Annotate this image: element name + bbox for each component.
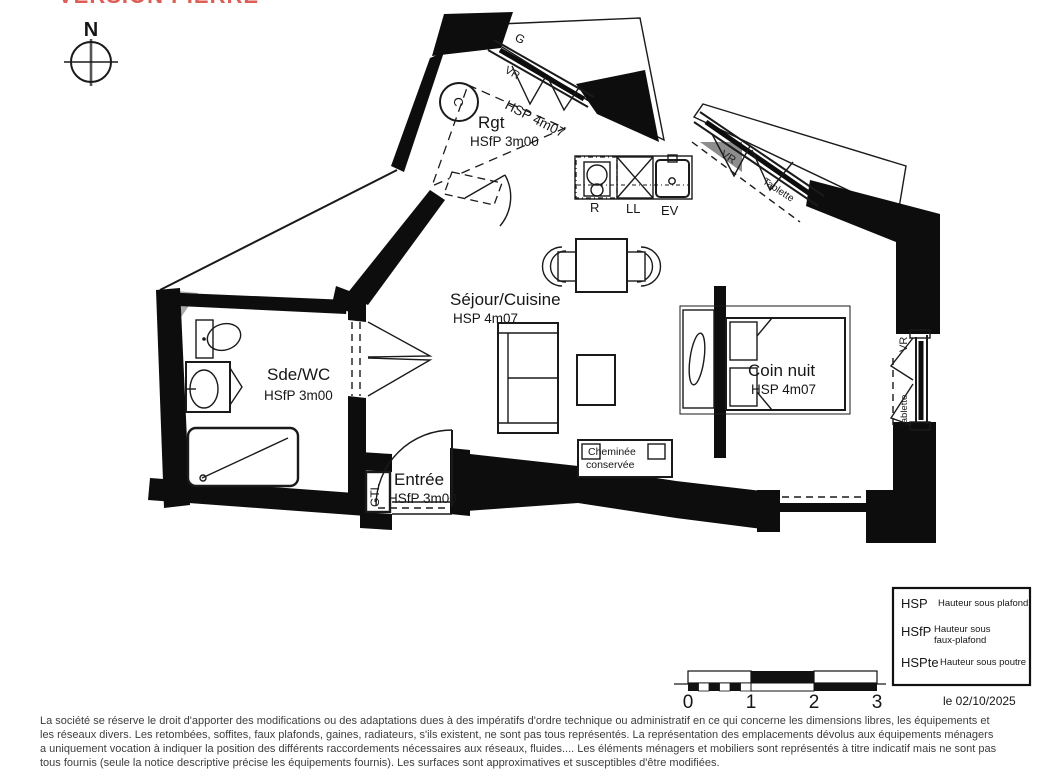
scale-tick-1: 1 [746, 692, 757, 713]
scale-tick-2: 2 [809, 692, 820, 713]
side-table [577, 355, 615, 405]
floor-plan-page: VERSION PIERRE N [0, 0, 1039, 770]
legend-hspte-abbr: HSPte [901, 655, 939, 670]
scale-check-1 [688, 683, 699, 691]
wall-sdewc-north [157, 292, 348, 314]
bed-zone-outline [680, 306, 850, 414]
gtl-label: GTL [368, 483, 382, 507]
scale-seg-top-2 [751, 671, 814, 683]
scale-check-6 [741, 683, 752, 691]
sdewc-name: Sde/WC [267, 365, 330, 384]
exterior-outline [160, 18, 906, 330]
wall-sejour-northwest [346, 190, 445, 305]
fridge-outline [576, 157, 617, 198]
floor-plan-drawing: N [0, 0, 1039, 770]
legend-hsp-abbr: HSP [901, 596, 928, 611]
room-coin-nuit: Coin nuit HSP 4m07 [680, 306, 850, 414]
scale-bar: 0 1 2 3 [674, 671, 886, 713]
fridge-label: R [590, 200, 599, 215]
sofa [498, 323, 558, 433]
facade-line-west [160, 170, 397, 290]
table-top [576, 239, 627, 292]
chimney-box: Cheminée conservée [578, 440, 672, 477]
chimney-label-2: conservée [586, 459, 635, 471]
fridge-circle-small [591, 184, 603, 196]
wall-headboard-partition [714, 286, 726, 458]
rgt-name: Rgt [478, 113, 505, 132]
washer-label: LL [626, 201, 640, 216]
scale-check-3 [709, 683, 720, 691]
wall-sdewc-east-top [348, 298, 366, 322]
rgt-dashed-opening [444, 172, 502, 205]
scale-seg-top-1 [688, 671, 751, 683]
guardrail-label: G [513, 30, 528, 47]
wall-southeast-corner [866, 422, 936, 543]
scale-check-2 [699, 683, 710, 691]
scale-seg-bot-3 [814, 683, 877, 691]
sejour-name: Séjour/Cuisine [450, 290, 561, 309]
bed-pillow-top [730, 322, 757, 360]
tablette-east-label: Tablette [899, 395, 910, 428]
window-north-inner-line [488, 50, 588, 107]
kitchen-counter: R LL EV [575, 155, 692, 218]
room-rgt: C HSP 4m07 Rgt HSfP 3m00 [432, 83, 567, 226]
room-sejour: Séjour/Cuisine HSP 4m07 [450, 290, 561, 326]
scale-check-5 [730, 683, 741, 691]
fridge-circle-large [587, 165, 607, 185]
coin-nuit-ceiling: HSP 4m07 [751, 382, 816, 397]
legend-box: HSP Hauteur sous plafond HSfP Hauteur so… [893, 588, 1030, 685]
sdewc-ceiling: HSfP 3m00 [264, 388, 333, 403]
entree-ceiling: HSfP 3m00 [388, 491, 457, 506]
wall-gtl-bottom [360, 512, 392, 530]
window-northeast: VR Tablette [692, 112, 824, 222]
room-entree: GTL Entrée HSfP 3m00 [366, 430, 457, 514]
scale-tick-0: 0 [683, 692, 694, 713]
scale-check-4 [720, 683, 731, 691]
bed-fold-top [757, 318, 772, 336]
sink-label: EV [661, 203, 679, 218]
north-compass: N [64, 19, 118, 86]
vr-east-label: VR [898, 337, 910, 352]
wall-gtl-top [360, 452, 392, 472]
wall-rgt-west [391, 52, 444, 172]
entree-name: Entrée [394, 470, 444, 489]
scale-seg-top-3 [814, 671, 877, 683]
rgt-door-arc [500, 175, 511, 226]
rgt-ceiling: HSfP 3m00 [470, 134, 539, 149]
legend-hspte-label: Hauteur sous poutre [940, 657, 1026, 668]
room-sde-wc: Sde/WC HSfP 3m00 [186, 319, 430, 486]
legend-hsp-label: Hauteur sous plafond [938, 598, 1028, 609]
window-east: VR Tablette [891, 330, 930, 430]
wall-northeast-corner [806, 180, 940, 334]
sdewc-door-leaf-2 [368, 358, 430, 396]
chimney-label-1: Cheminée [588, 446, 636, 458]
scale-tick-3: 3 [872, 692, 883, 713]
scale-seg-bot-2 [751, 683, 814, 691]
wall-radiator-bar [780, 503, 868, 512]
wall-sdewc-west [156, 288, 190, 508]
window-north: G VR [488, 30, 594, 110]
sdewc-door-leaf-1 [368, 322, 430, 357]
compass-north-label: N [84, 19, 98, 41]
legend-hsfp-abbr: HSfP [901, 624, 931, 639]
wall-pier-between-windows [576, 70, 659, 142]
coin-nuit-name: Coin nuit [748, 361, 815, 380]
legend-hsfp-label: Hauteur sous [934, 624, 991, 635]
washbasin-side-panel [230, 368, 242, 405]
wardrobe-outline [683, 310, 714, 408]
flue-label: C [451, 97, 466, 106]
plan-date: le 02/10/2025 [943, 694, 1016, 708]
toilet-bowl [204, 319, 244, 354]
legend-hsfp-label2: faux-plafond [934, 635, 986, 646]
toilet-flush-dot [202, 337, 206, 341]
disclaimer-text: La société se réserve le droit d'apporte… [40, 714, 1002, 770]
washbasin-cabinet [186, 362, 230, 412]
sink-drain [669, 178, 675, 184]
sejour-ceiling: HSP 4m07 [453, 311, 518, 326]
dining-table [543, 239, 661, 292]
wardrobe-rod [686, 332, 707, 385]
